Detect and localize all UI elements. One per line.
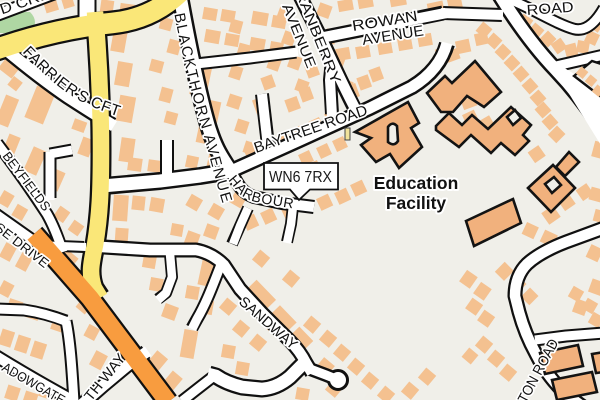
svg-text:WN6 7RX: WN6 7RX (269, 169, 332, 186)
svg-text:Education: Education (374, 173, 459, 193)
svg-text:Facility: Facility (386, 193, 447, 213)
svg-text:ROAD: ROAD (526, 0, 574, 19)
